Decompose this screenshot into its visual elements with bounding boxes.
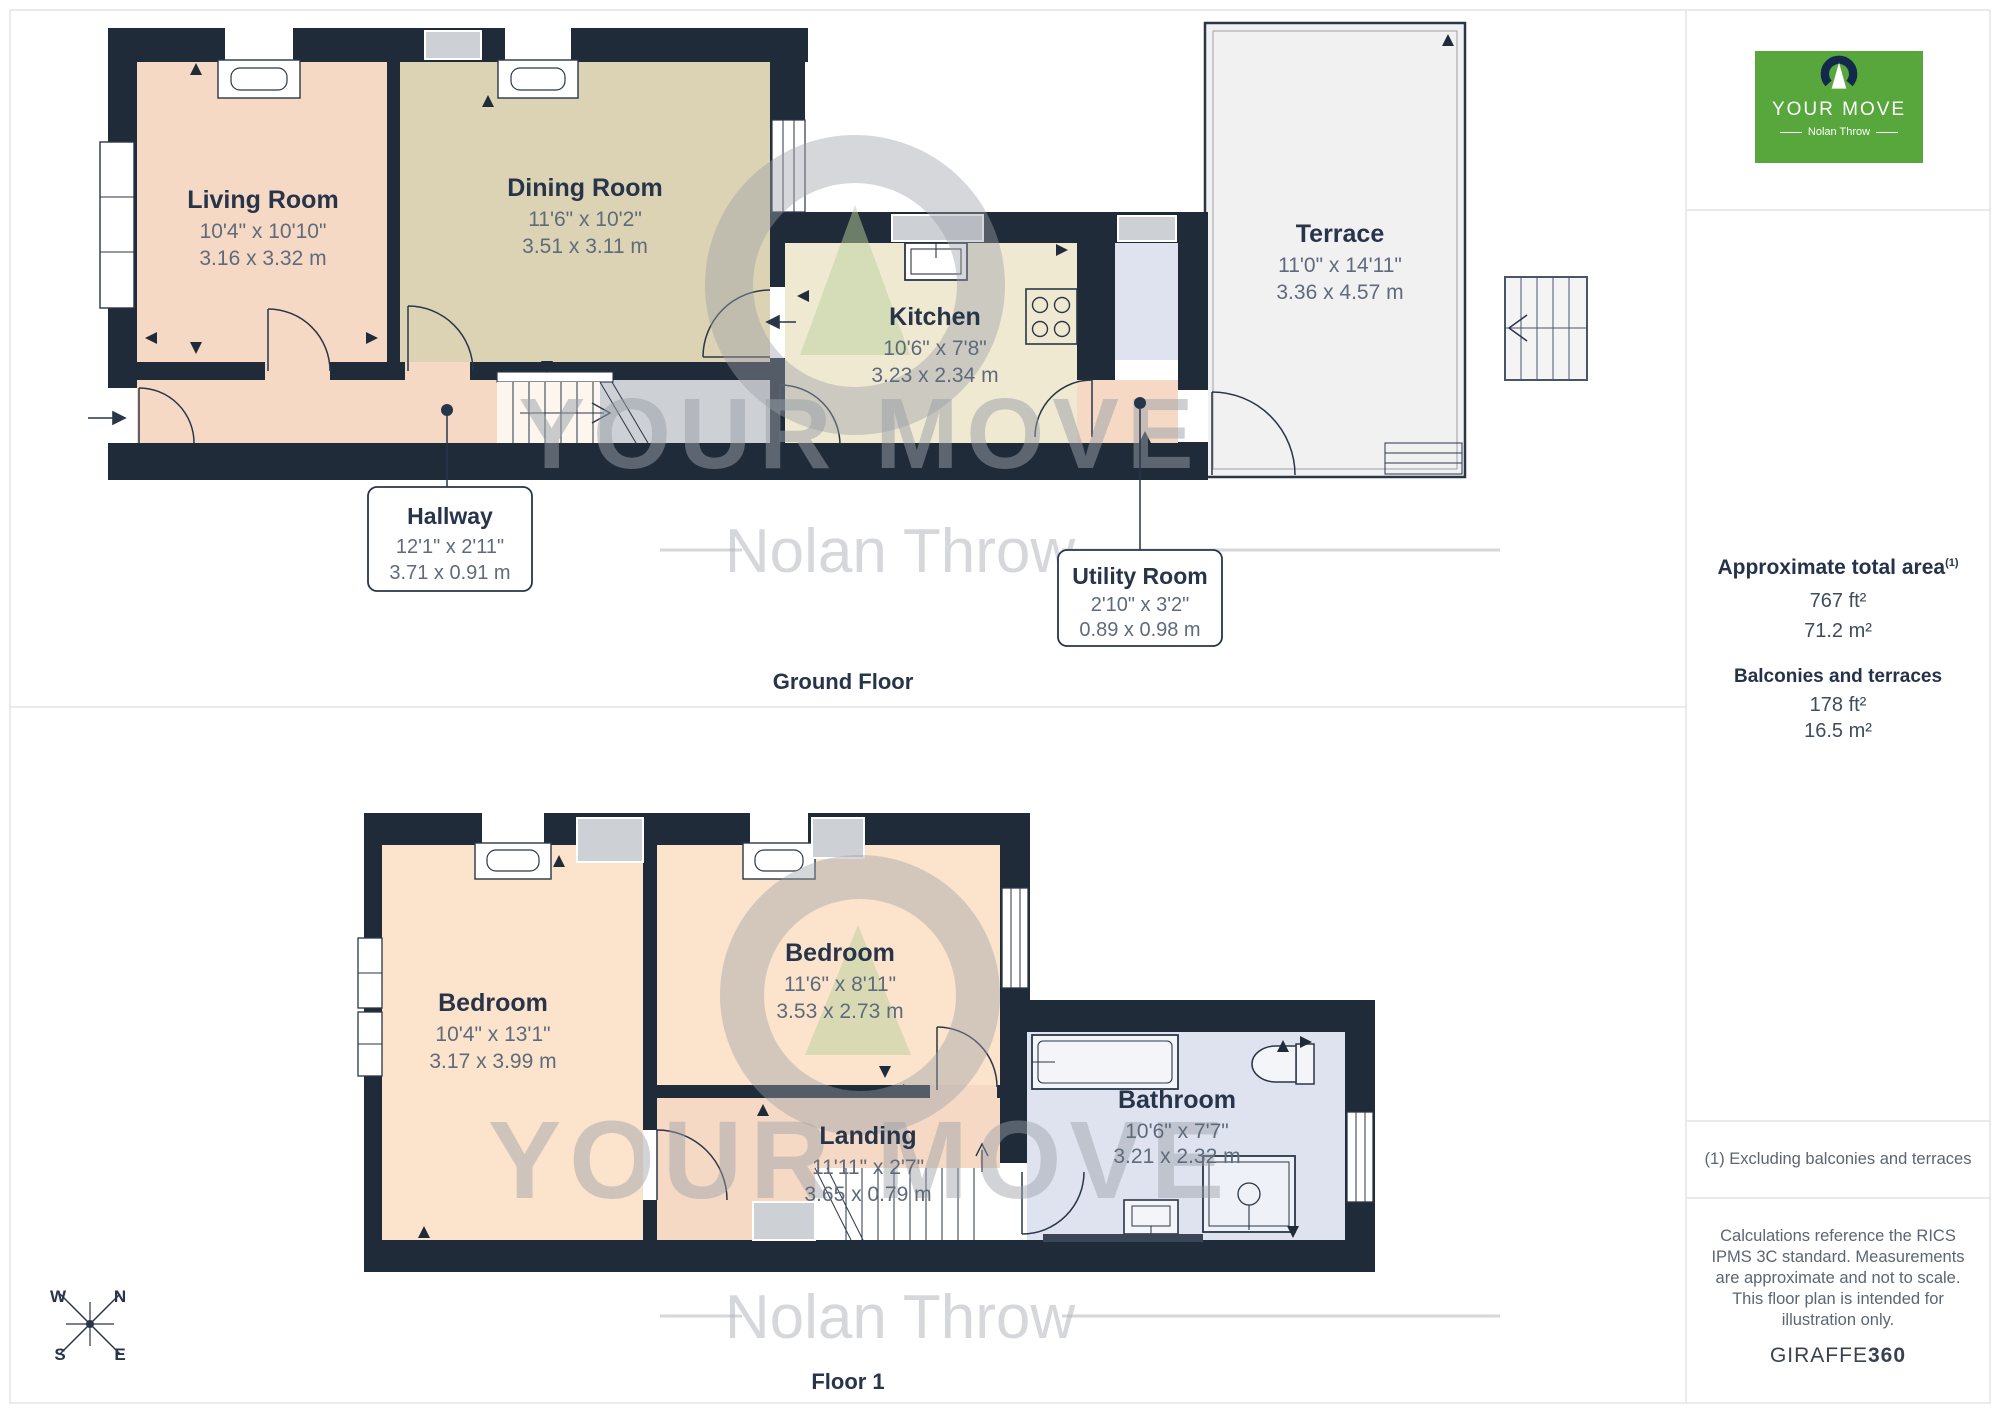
- disclaimer: Calculations reference the RICS IPMS 3C …: [1700, 1226, 1976, 1332]
- svg-text:Living Room: Living Room: [187, 186, 338, 214]
- compass-n: N: [114, 1287, 126, 1306]
- svg-text:10'4" x 13'1": 10'4" x 13'1": [435, 1023, 550, 1046]
- svg-text:3.51 x 3.11 m: 3.51 x 3.11 m: [522, 235, 648, 258]
- svg-text:3.17 x 3.99 m: 3.17 x 3.99 m: [429, 1050, 556, 1073]
- svg-text:Terrace: Terrace: [1296, 220, 1385, 248]
- external-stairs-icon: [1505, 277, 1587, 380]
- watermark-subtext: Nolan Throw: [725, 517, 1076, 586]
- svg-text:3.16 x 3.32 m: 3.16 x 3.32 m: [199, 247, 326, 270]
- compass-s: S: [54, 1345, 65, 1364]
- svg-text:10'6" x 7'7": 10'6" x 7'7": [1125, 1120, 1229, 1143]
- svg-text:3.65 x 0.79 m: 3.65 x 0.79 m: [804, 1183, 931, 1206]
- svg-text:10'6" x 7'8": 10'6" x 7'8": [883, 337, 987, 360]
- svg-text:3.71 x 0.91 m: 3.71 x 0.91 m: [389, 562, 510, 584]
- svg-text:Bedroom: Bedroom: [438, 989, 548, 1017]
- footnote: (1) Excluding balconies and terraces: [1686, 1150, 1990, 1169]
- compass-icon: W N S E: [50, 1287, 126, 1364]
- total-area-title: Approximate total area(1): [1686, 556, 1990, 580]
- terrace-area: [1205, 23, 1465, 477]
- room-label-kitchen: Kitchen 10'6" x 7'8" 3.23 x 2.34 m: [871, 303, 998, 387]
- your-move-logo: YOUR MOVE Nolan Throw: [1755, 51, 1923, 163]
- floor1-label: Floor 1: [811, 1369, 884, 1394]
- svg-text:2'10" x 3'2": 2'10" x 3'2": [1091, 594, 1190, 616]
- svg-text:3.23 x 2.34 m: 3.23 x 2.34 m: [871, 364, 998, 387]
- svg-text:11'11" x 2'7": 11'11" x 2'7": [812, 1156, 924, 1179]
- svg-text:Hallway: Hallway: [407, 503, 493, 529]
- compass-e: E: [114, 1345, 125, 1364]
- room-label-living: Living Room 10'4" x 10'10" 3.16 x 3.32 m: [187, 186, 338, 270]
- room-label-dining: Dining Room 11'6" x 10'2" 3.51 x 3.11 m: [507, 174, 663, 258]
- svg-text:0.89 x 0.98 m: 0.89 x 0.98 m: [1079, 619, 1200, 641]
- room-label-landing: Landing 11'11" x 2'7" 3.65 x 0.79 m: [804, 1122, 931, 1206]
- total-area-m: 71.2 m²: [1686, 620, 1990, 643]
- total-area-ft: 767 ft²: [1686, 590, 1990, 613]
- balconies-m: 16.5 m²: [1686, 720, 1990, 743]
- bathtub-icon: [1032, 1035, 1178, 1089]
- balconies-title: Balconies and terraces: [1686, 666, 1990, 688]
- svg-text:11'6" x 10'2": 11'6" x 10'2": [528, 208, 642, 231]
- svg-text:3.36 x 4.57 m: 3.36 x 4.57 m: [1276, 281, 1403, 304]
- compass-w: W: [50, 1287, 67, 1306]
- svg-text:Bedroom: Bedroom: [785, 939, 895, 967]
- room-label-bedroom1: Bedroom 10'4" x 13'1" 3.17 x 3.99 m: [429, 989, 556, 1073]
- svg-text:Kitchen: Kitchen: [889, 303, 981, 331]
- svg-text:12'1" x 2'11": 12'1" x 2'11": [396, 536, 504, 558]
- room-label-bedroom2: Bedroom 11'6" x 8'11" 3.53 x 2.73 m: [776, 939, 903, 1023]
- footnote-marker: (1): [1945, 557, 1958, 569]
- svg-text:3.21 x 2.32 m: 3.21 x 2.32 m: [1113, 1145, 1240, 1168]
- room-label-bathroom: Bathroom 10'6" x 7'7" 3.21 x 2.32 m: [1113, 1086, 1240, 1168]
- svg-text:Dining Room: Dining Room: [507, 174, 663, 202]
- balconies-ft: 178 ft²: [1686, 694, 1990, 717]
- svg-text:Landing: Landing: [819, 1122, 916, 1150]
- giraffe360-logo: GIRAFFE360: [1686, 1344, 1990, 1368]
- svg-text:11'6" x 8'11": 11'6" x 8'11": [784, 973, 896, 996]
- watermark-subtext: Nolan Throw: [725, 1283, 1076, 1352]
- floorplan-page: YOUR MOVE Nolan Throw YOUR MOVE Nolan Th…: [0, 0, 2000, 1414]
- svg-text:Bathroom: Bathroom: [1118, 1086, 1236, 1114]
- svg-text:11'0" x 14'11": 11'0" x 14'11": [1278, 254, 1402, 277]
- svg-text:Utility Room: Utility Room: [1072, 563, 1207, 589]
- logo-subtitle: Nolan Throw: [1780, 126, 1898, 138]
- logo-rule-left: [1780, 132, 1802, 133]
- svg-text:10'4" x 10'10": 10'4" x 10'10": [200, 220, 327, 243]
- logo-rule-right: [1876, 132, 1898, 133]
- kitchen-hob-icon: [1026, 289, 1077, 344]
- brand-mark-icon: [1816, 51, 1862, 97]
- logo-title: YOUR MOVE: [1772, 99, 1906, 121]
- ground-floor-label: Ground Floor: [773, 669, 914, 694]
- watermark-text: YOUR MOVE: [518, 378, 1201, 490]
- svg-text:3.53 x 2.73 m: 3.53 x 2.73 m: [776, 1000, 903, 1023]
